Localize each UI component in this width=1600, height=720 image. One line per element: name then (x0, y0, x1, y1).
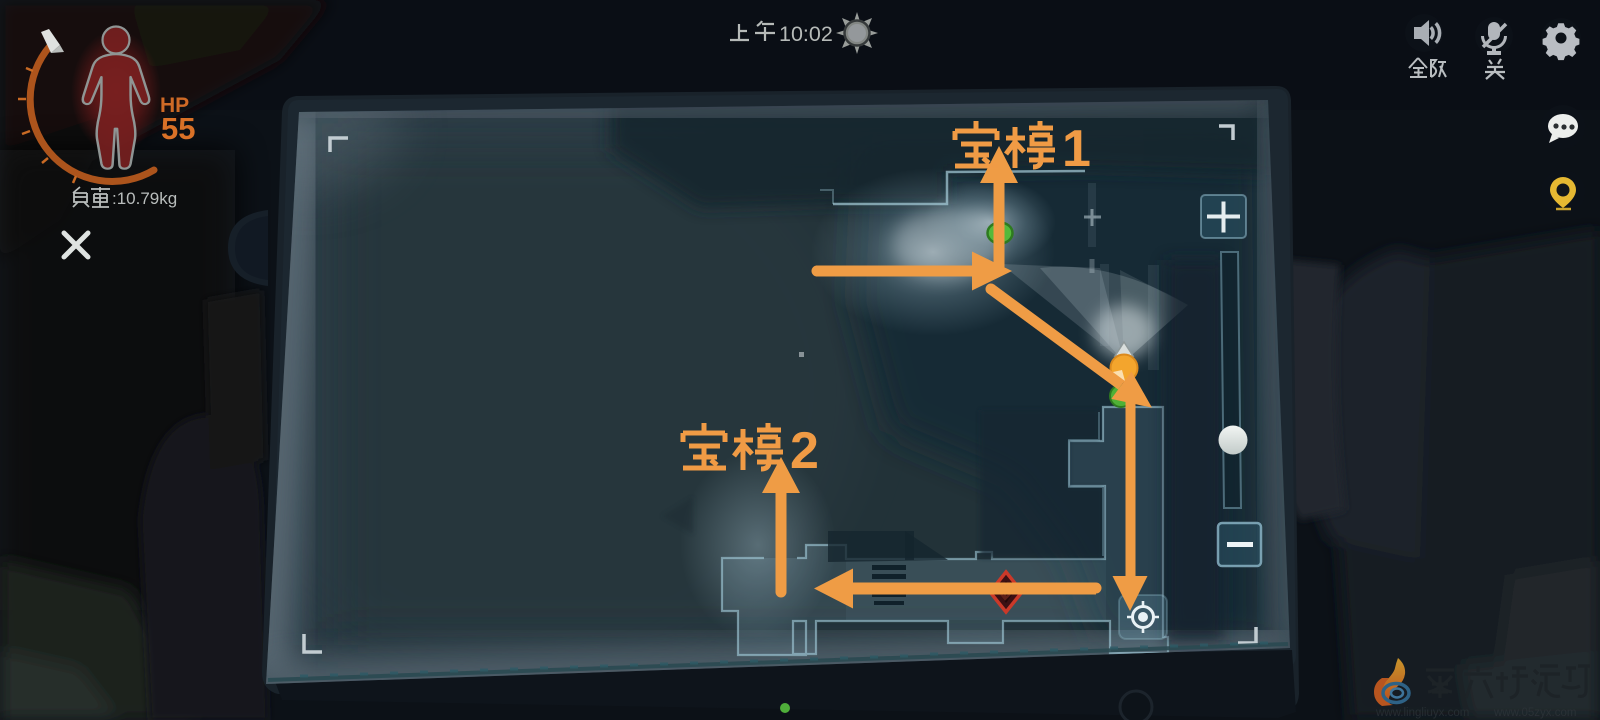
svg-text::10.79kg: :10.79kg (112, 189, 177, 208)
svg-text:2: 2 (790, 422, 819, 480)
svg-text:www.lingliuyx.com: www.lingliuyx.com (1375, 707, 1469, 719)
svg-text:1: 1 (1062, 120, 1091, 178)
svg-text:55: 55 (161, 111, 195, 146)
svg-text:10:02: 10:02 (779, 22, 833, 46)
svg-text:www.05zyx.com: www.05zyx.com (1493, 707, 1576, 719)
